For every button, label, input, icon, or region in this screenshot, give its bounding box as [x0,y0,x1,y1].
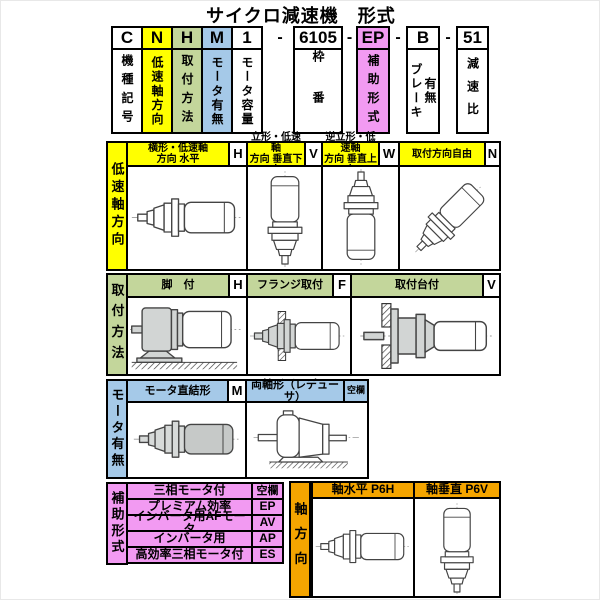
code-cell-n: N [141,26,173,50]
code-separator: - [390,26,406,50]
code-cell-b: B [406,26,440,50]
code-flange-f: F [332,273,352,298]
code-desc-ratio: 減速比 [456,48,489,134]
code-desc-m: モータ有無 [201,48,233,134]
header-double-shaft: 両軸形（レデューサ） [245,379,345,403]
code-separator: - [267,26,293,50]
code-desc-capacity: モータ容量 [231,48,263,134]
header-motor-direct: モータ直結形 [126,379,229,403]
code-cell-c: C [111,26,143,50]
section-label-auxiliary: 補助形式 [106,482,128,565]
motor-vertical-up-icon [321,165,400,271]
code-desc-c: 機種記号 [111,48,143,134]
motor-diagonal-icon [398,165,501,271]
code-separator: - [343,26,356,50]
header-vertical-up-type: 逆立形・低速軸方向 垂直上向 [321,141,380,167]
code-cell-ratio: 51 [456,26,489,50]
motor-direct-coupled-icon [126,401,247,479]
aux-row-code: ES [251,546,284,564]
code-cell-capacity: 1 [231,26,263,50]
code-base-v: V [482,273,501,298]
header-base-mounted: 取付台付 [350,273,484,298]
code-desc-n: 低速軸方向 [141,48,173,134]
code-h: H [228,141,248,167]
motor-vertical-down-icon [246,165,323,271]
code-w: W [378,141,400,167]
header-flange-mounted: フランジ取付 [246,273,334,298]
page-title: サイクロ減速機 形式 [1,2,600,28]
code-separator: - [440,26,456,50]
code-n: N [484,141,501,167]
code-double-shaft-blank: 空欄 [343,379,369,403]
header-foot-mounted: 脚 付 [126,273,230,298]
shaft-horizontal-motor-icon [311,497,415,598]
reducer-double-shaft-icon [245,401,369,479]
code-cell-ep: EP [356,26,390,50]
motor-foot-mounted-icon [126,296,248,376]
motor-base-mounted-icon [350,296,501,376]
code-desc-h: 取付方法 [171,48,203,134]
code-cell-frame: 6105 [293,26,343,50]
code-desc-frame: 枠番 [293,48,343,134]
code-foot-h: H [228,273,248,298]
motor-flange-mounted-icon [246,296,352,376]
code-desc-ep: 補助形式 [356,48,390,134]
section-label-low-speed-shaft: 低速軸方向 [106,141,128,271]
section-label-axis: 軸方向 [289,481,311,598]
nomenclature-diagram: サイクロ減速機 形式 C N H M 1 6105 EP B 51 - - - … [0,0,600,600]
code-cell-h: H [171,26,203,50]
code-desc-b: ブレーキ有無 [406,48,440,134]
motor-horizontal-icon [126,165,248,271]
aux-row-name: 高効率三相モータ付 [126,546,253,564]
header-free-direction: 取付方向自由 [398,141,486,167]
shaft-vertical-motor-icon [413,497,501,598]
code-cell-m: M [201,26,233,50]
section-label-mounting: 取付方法 [106,273,128,376]
code-motor-m: M [227,379,247,403]
header-horizontal-type: 横形・低速軸方向 水平 [126,141,230,167]
section-label-motor: モータ有無 [106,379,128,479]
header-vertical-down-type: 立形・低速軸方向 垂直下向 [246,141,306,167]
